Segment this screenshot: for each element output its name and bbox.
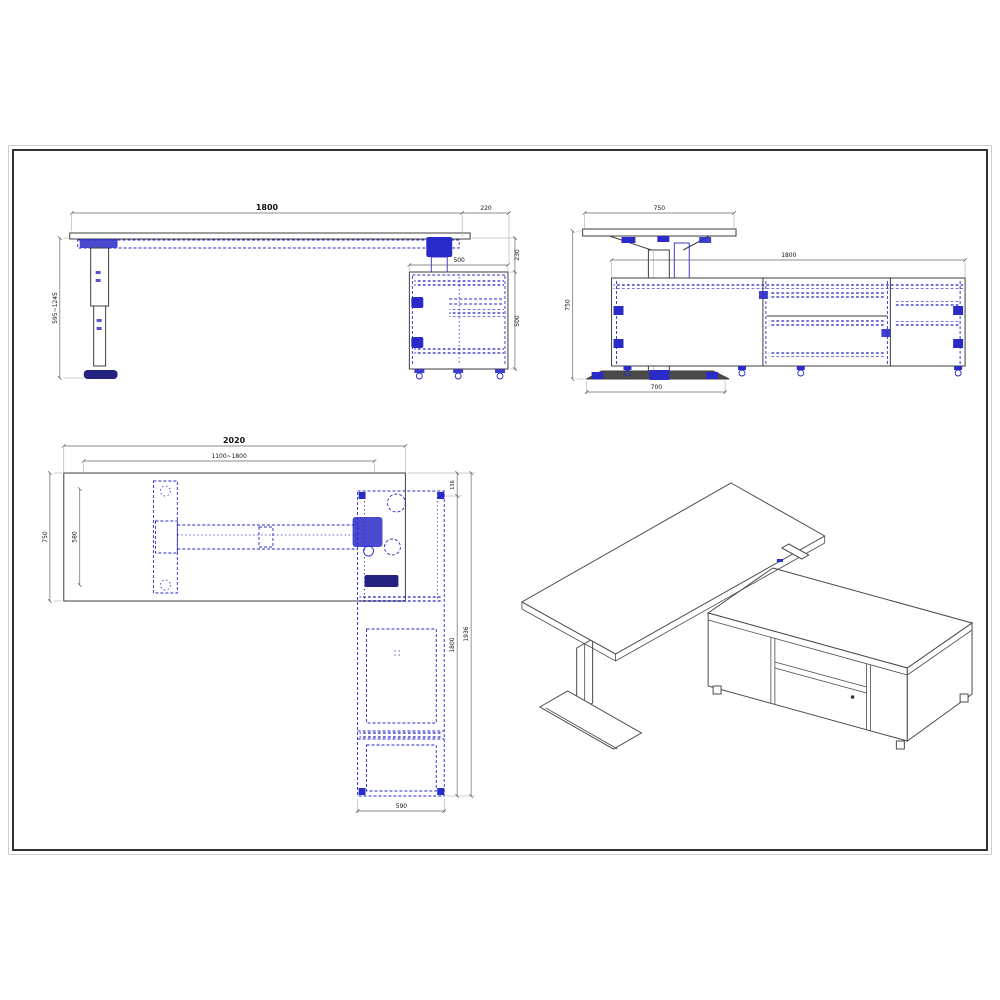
front-desktop — [70, 233, 470, 239]
iso-desk-leg — [540, 639, 642, 749]
svg-text:500: 500 — [453, 257, 465, 264]
side-cabinet — [612, 278, 966, 376]
plan-dim-cabinet-length: 1800 — [446, 496, 475, 796]
side-foot — [587, 370, 729, 380]
front-cabinet-handle-lower — [411, 337, 423, 348]
iso-cable-clip — [777, 559, 783, 562]
side-hinge-right-lower — [953, 339, 963, 348]
svg-text:595~1245: 595~1245 — [52, 292, 59, 324]
side-desktop — [583, 229, 736, 236]
svg-text:700: 700 — [651, 384, 663, 391]
drawing-canvas: 1800 220 595~1245 500 — [14, 151, 986, 849]
svg-text:220: 220 — [480, 205, 492, 212]
side-hinge-left-upper — [614, 306, 624, 315]
front-dim-cabinet-height: 500 — [510, 272, 521, 369]
svg-text:2020: 2020 — [223, 436, 246, 445]
front-dim-height-range: 595~1245 — [52, 238, 84, 378]
front-dim-cabinet-top-width: 500 — [409, 257, 508, 272]
drawing-frame: 1800 220 595~1245 500 — [8, 145, 992, 855]
front-left-leg — [84, 248, 118, 379]
side-bracket — [610, 236, 712, 250]
front-dim-top-to-cabinet: 230 — [472, 238, 521, 272]
side-dim-foot-width: 700 — [587, 381, 725, 394]
svg-text:750: 750 — [565, 299, 572, 311]
front-left-leg-bracket — [80, 239, 118, 248]
plan-dim-overall-length: 1936 — [463, 473, 471, 796]
iso-credenza — [708, 568, 972, 749]
plan-dim-desktop-depth: 750 — [42, 473, 62, 601]
side-hinge-left-lower — [614, 339, 624, 348]
drawing-frame-inner: 1800 220 595~1245 500 — [12, 149, 988, 851]
svg-text:750: 750 — [42, 531, 49, 543]
front-elevation-view: 1800 220 595~1245 500 — [52, 203, 521, 379]
side-hinge-right-upper — [953, 306, 963, 315]
svg-text:1800: 1800 — [781, 252, 796, 259]
side-dim-desktop-depth: 750 — [585, 205, 734, 229]
side-dim-overall-height: 750 — [565, 231, 587, 379]
plan-dim-cabinet-width: 590 — [358, 799, 445, 813]
front-cabinet — [409, 272, 508, 379]
side-elevation-view: 750 1800 750 700 — [565, 205, 965, 394]
front-right-leg-bracket — [426, 237, 452, 257]
front-cabinet-casters — [414, 369, 505, 379]
front-left-foot — [84, 370, 118, 379]
svg-text:750: 750 — [654, 205, 666, 212]
svg-text:590: 590 — [396, 803, 408, 810]
front-cabinet-handle-upper — [411, 297, 423, 308]
svg-text:1800: 1800 — [256, 203, 279, 212]
svg-text:230: 230 — [514, 249, 521, 261]
svg-text:1936: 1936 — [463, 626, 470, 641]
front-frame-rail — [78, 240, 459, 248]
svg-text:580: 580 — [72, 531, 79, 543]
svg-text:1100~1800: 1100~1800 — [211, 453, 247, 460]
plan-view: 2020 1100~1800 750 580 — [42, 436, 475, 813]
svg-text:136: 136 — [450, 480, 456, 490]
iso-keyhole — [851, 695, 855, 699]
plan-cabinet-lock-mark — [394, 651, 402, 655]
front-dim-desktop-width: 1800 — [72, 203, 462, 237]
svg-text:1800: 1800 — [449, 637, 456, 652]
isometric-view — [522, 483, 972, 749]
svg-text:500: 500 — [514, 315, 521, 327]
plan-dim-frame-width-range: 1100~1800 — [84, 453, 375, 473]
